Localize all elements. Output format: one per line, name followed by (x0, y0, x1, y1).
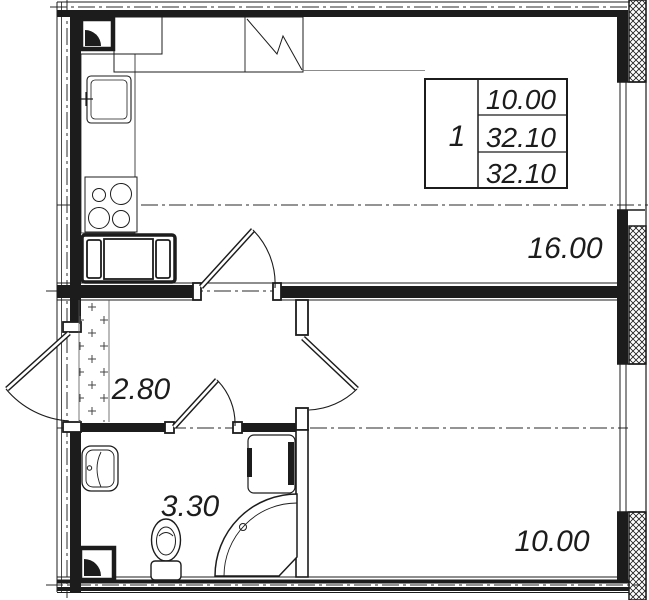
hallway-area-label: 2.80 (111, 373, 171, 406)
door-jamb (273, 283, 281, 300)
hatched-wall-segment (629, 512, 646, 600)
total-area-value: 32.10 (486, 122, 556, 153)
washing-machine (247, 435, 295, 493)
hatched-wall-segment (629, 226, 646, 364)
door-jamb (233, 422, 242, 433)
door-jamb (296, 408, 308, 430)
floor-plan-drawing: 1 10.00 32.10 32.10 16.00 2.80 3.30 10.0… (0, 0, 649, 600)
door-jamb (63, 322, 81, 332)
vent-shaft-bathroom (80, 548, 114, 580)
bathroom-area-label: 3.30 (161, 490, 220, 523)
toilet (151, 519, 181, 580)
hallway-textured-strip (79, 300, 109, 422)
living-area-value: 10.00 (486, 84, 556, 115)
info-table: 1 10.00 32.10 32.10 (425, 79, 567, 189)
stove (85, 177, 137, 232)
door-jamb (63, 422, 81, 432)
door-jamb (296, 300, 308, 335)
living-room-area-label: 16.00 (527, 232, 602, 265)
sofa (82, 235, 175, 282)
total-area-with-balcony-value: 32.10 (486, 158, 556, 189)
rooms-count-value: 1 (449, 120, 466, 153)
bedroom-area-label: 10.00 (514, 525, 589, 558)
door-jamb (165, 422, 174, 433)
floor-plan: 1 10.00 32.10 32.10 16.00 2.80 3.30 10.0… (0, 0, 649, 600)
hatched-wall-segment (629, 0, 646, 82)
